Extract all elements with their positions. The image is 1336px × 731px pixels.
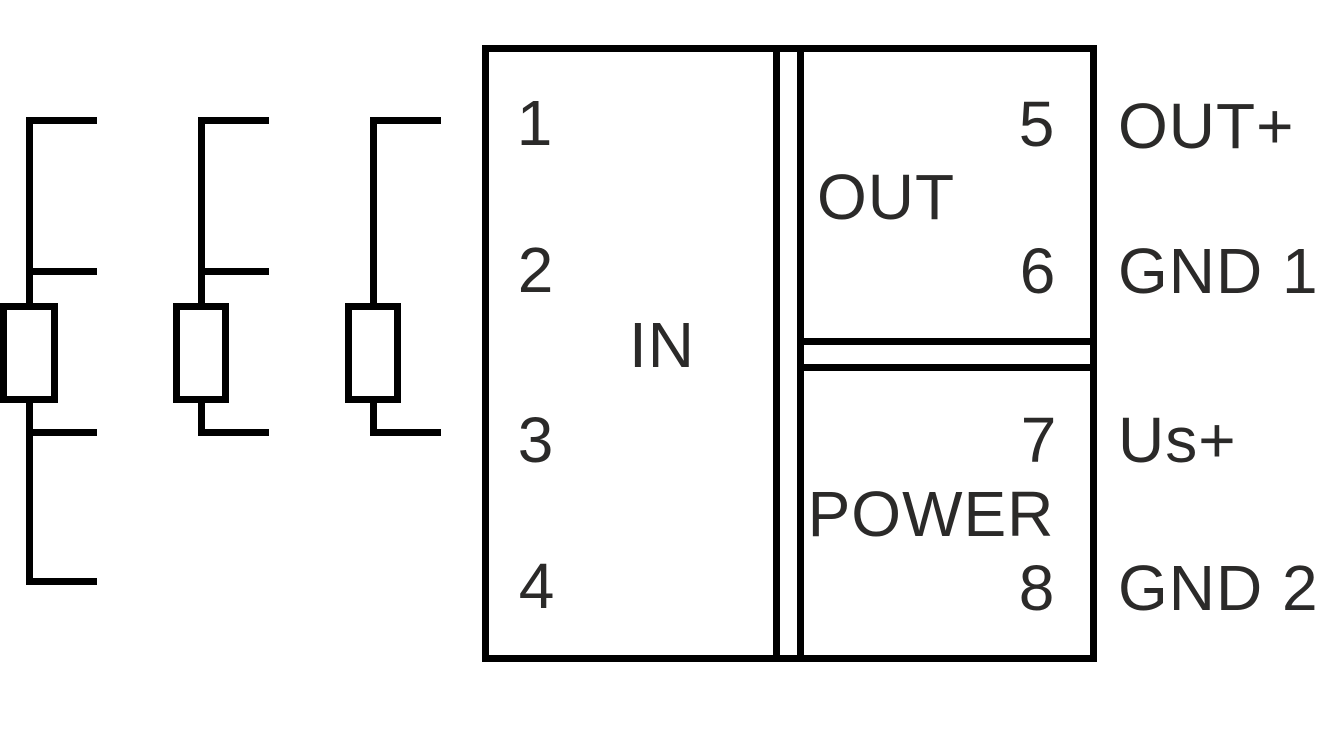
signal-label-us-plus: Us+: [1118, 408, 1237, 472]
signal-label-gnd-1: GND 1: [1118, 239, 1319, 303]
power-section-label: POWER: [808, 482, 1055, 546]
terminal-number-2: 2: [518, 238, 555, 302]
out-power-divider-line: [804, 364, 1090, 371]
rtd-resistor-body: [345, 303, 401, 403]
section-divider-line: [773, 45, 780, 662]
sensor-lead-stub: [370, 117, 441, 124]
terminal-number-7: 7: [1021, 408, 1058, 472]
section-divider-line: [797, 45, 804, 662]
terminal-number-6: 6: [1020, 239, 1057, 303]
terminal-number-8: 8: [1019, 556, 1056, 620]
terminal-number-3: 3: [518, 408, 555, 472]
in-section-label: IN: [629, 313, 695, 377]
sensor-lead-stub: [26, 578, 97, 585]
terminal-number-1: 1: [517, 91, 554, 155]
sensor-lead-stub: [198, 268, 269, 275]
signal-label-gnd-2: GND 2: [1118, 556, 1319, 620]
sensor-lead-stub: [26, 429, 97, 436]
signal-label-out-plus: OUT+: [1118, 94, 1294, 158]
wiring-diagram: 1 2 3 4 IN 5 OUT 6 7 POWER 8 OUT+ GND 1 …: [0, 0, 1336, 731]
terminal-number-5: 5: [1019, 92, 1056, 156]
sensor-lead-stub: [198, 117, 269, 124]
sensor-lead-stub: [26, 117, 97, 124]
terminal-number-4: 4: [519, 554, 556, 618]
module-outline: [482, 45, 1097, 662]
sensor-lead-stub: [198, 429, 269, 436]
out-power-divider-line: [804, 338, 1090, 345]
sensor-lead-stub: [370, 429, 441, 436]
rtd-resistor-body: [0, 303, 58, 403]
rtd-resistor-body: [173, 303, 229, 403]
sensor-lead-stub: [26, 268, 97, 275]
out-section-label: OUT: [817, 165, 955, 229]
